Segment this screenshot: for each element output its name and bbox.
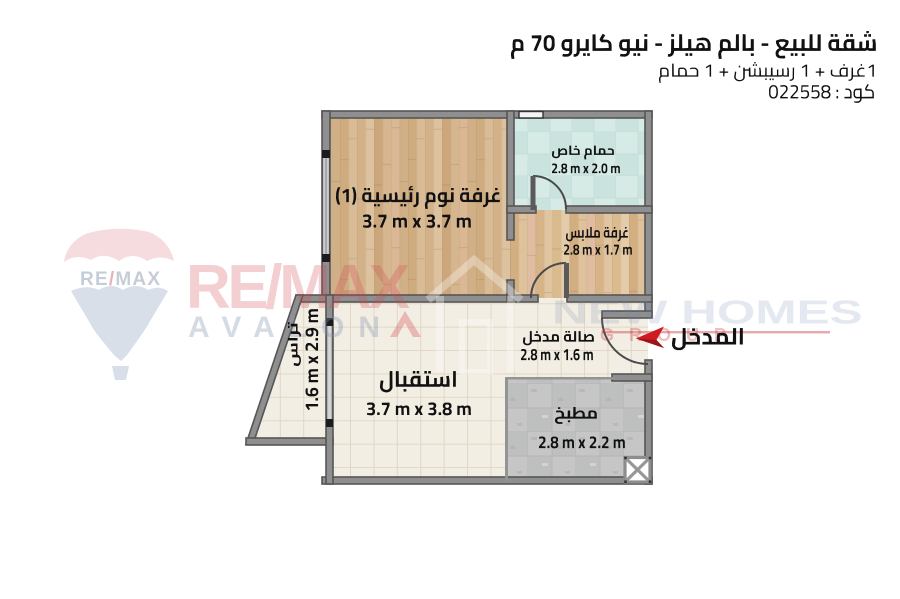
svg-text:RE/MAX: RE/MAX [80, 269, 160, 290]
